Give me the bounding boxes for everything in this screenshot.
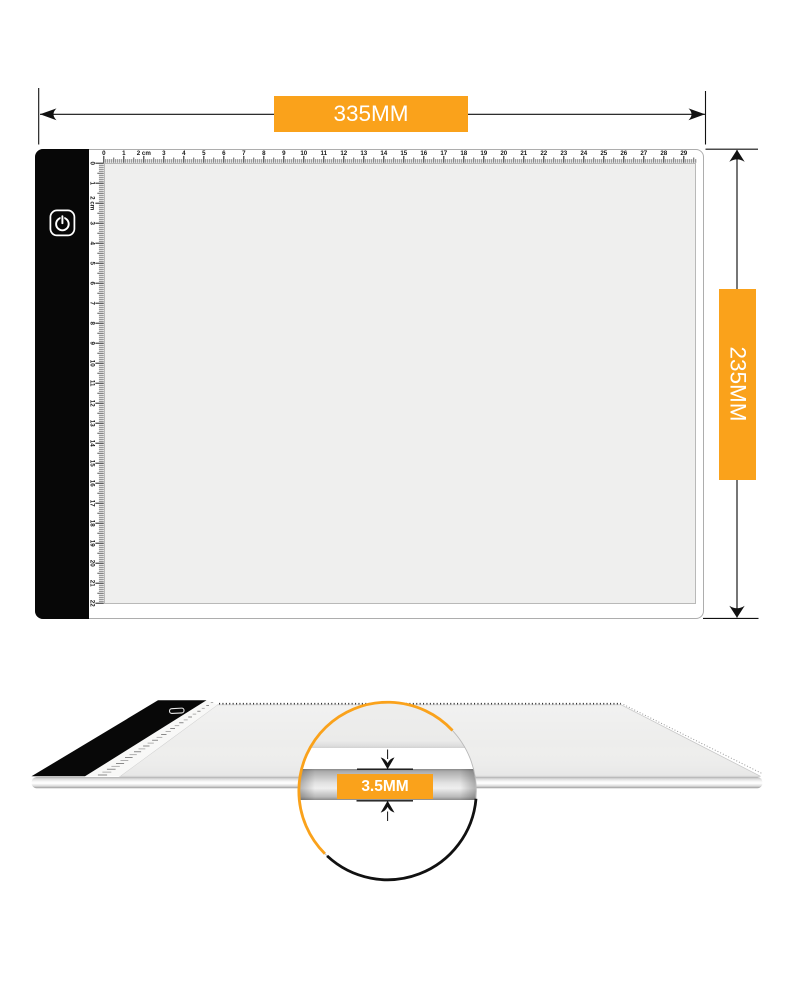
svg-text:12: 12	[340, 150, 347, 157]
svg-text:5: 5	[88, 261, 95, 265]
svg-text:21: 21	[88, 580, 95, 587]
svg-text:1: 1	[122, 150, 126, 157]
svg-text:4: 4	[182, 150, 186, 157]
svg-text:18: 18	[88, 520, 95, 527]
svg-text:6: 6	[222, 150, 226, 157]
svg-text:23: 23	[560, 150, 567, 157]
svg-text:7: 7	[242, 150, 246, 157]
svg-text:26: 26	[620, 150, 627, 157]
svg-text:9: 9	[282, 150, 286, 157]
svg-text:25: 25	[600, 150, 607, 157]
svg-text:11: 11	[321, 150, 328, 157]
svg-text:13: 13	[360, 150, 367, 157]
svg-text:18: 18	[460, 150, 467, 157]
svg-text:27: 27	[640, 150, 647, 157]
svg-text:10: 10	[300, 150, 307, 157]
svg-text:14: 14	[88, 440, 95, 447]
svg-text:2 cm: 2 cm	[88, 196, 95, 211]
svg-text:19: 19	[88, 540, 95, 547]
svg-text:12: 12	[88, 400, 95, 407]
svg-text:14: 14	[380, 150, 387, 157]
svg-text:20: 20	[88, 560, 95, 567]
svg-text:5: 5	[202, 150, 206, 157]
svg-text:19: 19	[480, 150, 487, 157]
svg-text:2 cm: 2 cm	[137, 150, 152, 157]
svg-text:17: 17	[440, 150, 447, 157]
svg-text:9: 9	[88, 341, 95, 345]
svg-text:29: 29	[680, 150, 687, 157]
svg-text:7: 7	[88, 301, 95, 305]
svg-text:15: 15	[88, 460, 95, 467]
svg-text:17: 17	[88, 500, 95, 507]
svg-text:1: 1	[88, 181, 95, 185]
svg-text:3: 3	[88, 221, 95, 225]
svg-text:10: 10	[88, 360, 95, 367]
svg-text:15: 15	[400, 150, 407, 157]
svg-text:22: 22	[88, 600, 95, 607]
svg-text:4: 4	[88, 241, 95, 245]
svg-text:24: 24	[580, 150, 587, 157]
svg-text:20: 20	[500, 150, 507, 157]
svg-text:8: 8	[262, 150, 266, 157]
svg-text:8: 8	[88, 321, 95, 325]
svg-text:6: 6	[88, 281, 95, 285]
svg-text:28: 28	[660, 150, 667, 157]
svg-text:21: 21	[520, 150, 527, 157]
svg-text:3: 3	[162, 150, 166, 157]
svg-text:13: 13	[88, 420, 95, 427]
svg-text:0: 0	[88, 161, 95, 165]
svg-text:11: 11	[88, 380, 95, 387]
svg-text:0: 0	[102, 150, 106, 157]
svg-text:16: 16	[420, 150, 427, 157]
svg-text:22: 22	[540, 150, 547, 157]
svg-text:16: 16	[88, 480, 95, 487]
